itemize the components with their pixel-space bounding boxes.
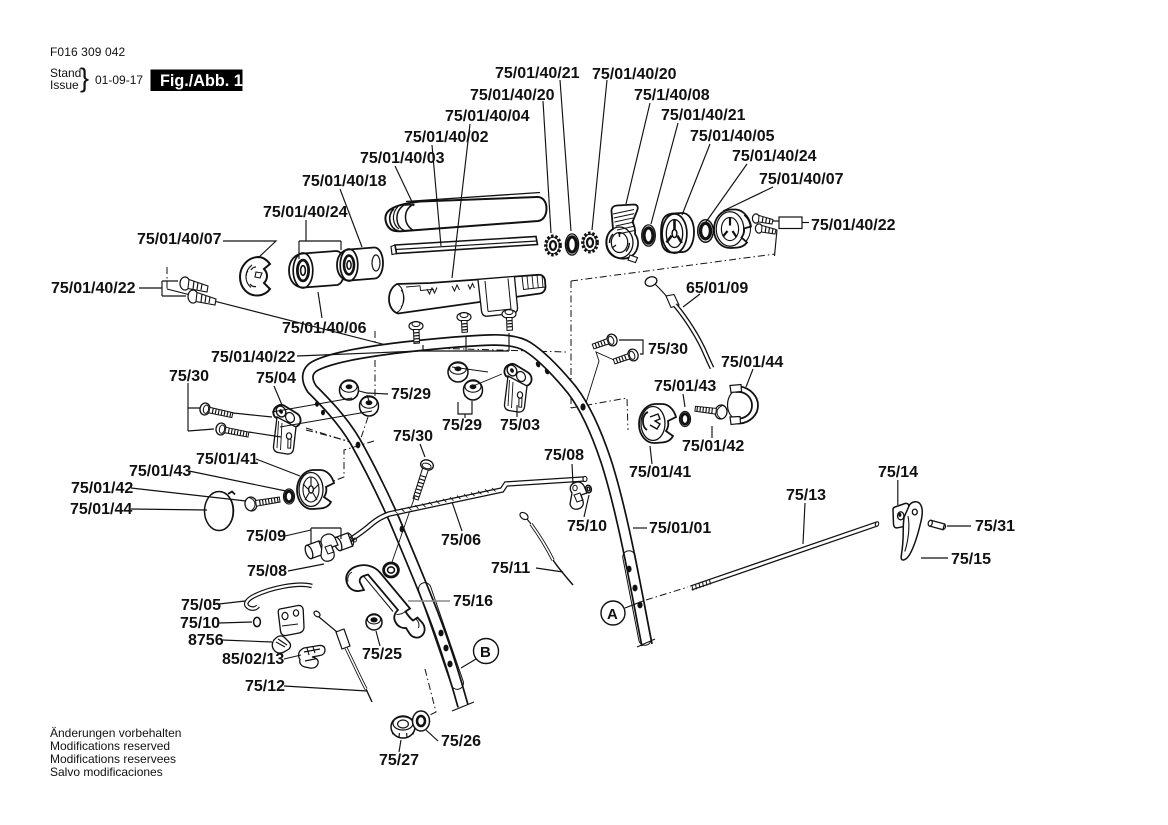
- svg-text:75/01/40/05: 75/01/40/05: [690, 128, 775, 145]
- svg-text:B: B: [480, 644, 491, 661]
- svg-text:75/01/40/04: 75/01/40/04: [445, 108, 530, 125]
- svg-text:75/26: 75/26: [441, 733, 481, 750]
- svg-text:75/01/40/20: 75/01/40/20: [592, 66, 677, 83]
- svg-text:75/14: 75/14: [878, 464, 918, 481]
- svg-text:75/01/44: 75/01/44: [721, 354, 783, 371]
- svg-text:Salvo modificaciones: Salvo modificaciones: [50, 765, 163, 779]
- svg-text:75/01/42: 75/01/42: [71, 480, 133, 497]
- svg-text:75/01/40/22: 75/01/40/22: [211, 349, 296, 366]
- svg-text:75/30: 75/30: [169, 368, 209, 385]
- svg-text:75/06: 75/06: [441, 532, 481, 549]
- svg-text:75/01/40/24: 75/01/40/24: [263, 204, 348, 221]
- svg-text:75/01/43: 75/01/43: [129, 463, 191, 480]
- svg-text:75/03: 75/03: [500, 417, 540, 434]
- svg-text:75/01/42: 75/01/42: [682, 438, 744, 455]
- svg-text:75/01/41: 75/01/41: [629, 464, 691, 481]
- svg-text:75/01/40/03: 75/01/40/03: [360, 150, 445, 167]
- svg-text:75/09: 75/09: [246, 528, 286, 545]
- svg-text:75/30: 75/30: [393, 428, 433, 445]
- svg-text:75/01/40/22: 75/01/40/22: [811, 217, 896, 234]
- svg-text:75/29: 75/29: [442, 417, 482, 434]
- svg-text:75/01/40/20: 75/01/40/20: [470, 87, 555, 104]
- svg-text:Änderungen vorbehalten: Änderungen vorbehalten: [50, 726, 181, 740]
- svg-text:75/29: 75/29: [391, 386, 431, 403]
- svg-text:75/01/40/24: 75/01/40/24: [732, 148, 817, 165]
- svg-text:75/05: 75/05: [181, 597, 221, 614]
- svg-text:75/13: 75/13: [786, 487, 826, 504]
- svg-text:75/11: 75/11: [491, 560, 530, 577]
- svg-text:75/25: 75/25: [362, 646, 402, 663]
- svg-text:8756: 8756: [188, 632, 224, 649]
- svg-text:75/31: 75/31: [975, 518, 1015, 535]
- svg-text:Modifications reserved: Modifications reserved: [50, 739, 170, 753]
- svg-text:Fig./Abb. 1: Fig./Abb. 1: [160, 72, 243, 90]
- svg-text:75/01/40/22: 75/01/40/22: [51, 280, 136, 297]
- svg-text:75/01/43: 75/01/43: [654, 378, 716, 395]
- svg-text:75/01/40/06: 75/01/40/06: [282, 320, 367, 337]
- svg-text:F016 309 042: F016 309 042: [50, 45, 125, 59]
- svg-text:Modifications reservees: Modifications reservees: [50, 752, 176, 766]
- svg-text:75/01/40/21: 75/01/40/21: [661, 107, 746, 124]
- svg-text:75/16: 75/16: [453, 593, 493, 610]
- svg-text:75/30: 75/30: [648, 341, 688, 358]
- svg-text:}: }: [80, 63, 89, 93]
- svg-text:85/02/13: 85/02/13: [222, 651, 284, 668]
- svg-text:75/04: 75/04: [256, 370, 296, 387]
- svg-text:75/1/40/08: 75/1/40/08: [634, 87, 710, 104]
- svg-text:75/27: 75/27: [379, 752, 419, 769]
- svg-text:75/01/01: 75/01/01: [649, 520, 711, 537]
- svg-text:75/01/40/02: 75/01/40/02: [404, 129, 489, 146]
- svg-text:A: A: [607, 606, 618, 623]
- svg-text:65/01/09: 65/01/09: [686, 280, 748, 297]
- svg-text:75/15: 75/15: [951, 551, 991, 568]
- svg-text:75/01/40/18: 75/01/40/18: [302, 173, 387, 190]
- svg-text:75/01/40/21: 75/01/40/21: [495, 65, 580, 82]
- svg-text:75/10: 75/10: [180, 615, 220, 632]
- svg-text:75/01/40/07: 75/01/40/07: [759, 171, 844, 188]
- svg-text:75/01/41: 75/01/41: [196, 451, 258, 468]
- svg-text:75/12: 75/12: [245, 678, 285, 695]
- svg-text:Issue: Issue: [50, 78, 79, 92]
- svg-text:75/08: 75/08: [544, 447, 584, 464]
- svg-text:75/01/40/07: 75/01/40/07: [137, 231, 222, 248]
- svg-text:75/08: 75/08: [247, 563, 287, 580]
- svg-text:01-09-17: 01-09-17: [95, 73, 143, 87]
- svg-text:75/10: 75/10: [567, 518, 607, 535]
- svg-text:75/01/44: 75/01/44: [70, 501, 132, 518]
